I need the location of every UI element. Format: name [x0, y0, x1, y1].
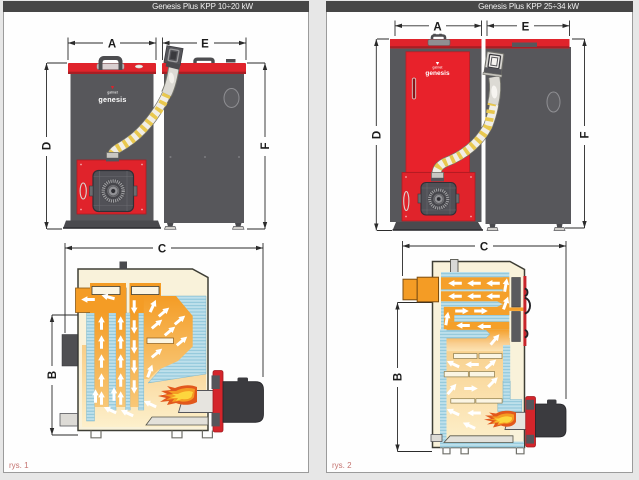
svg-text:D: D: [42, 142, 54, 150]
svg-text:A: A: [433, 21, 441, 33]
svg-text:genesis: genesis: [98, 95, 126, 104]
svg-text:galmet: galmet: [107, 91, 118, 95]
svg-text:C: C: [480, 242, 488, 254]
svg-text:C: C: [158, 244, 166, 256]
svg-text:F: F: [260, 142, 272, 149]
svg-text:E: E: [201, 39, 209, 51]
svg-text:D: D: [371, 131, 383, 139]
svg-text:B: B: [393, 373, 405, 381]
svg-text:genesis: genesis: [425, 70, 450, 77]
svg-text:galmet: galmet: [433, 66, 443, 70]
svg-text:A: A: [108, 39, 116, 51]
svg-text:B: B: [47, 371, 59, 379]
svg-text:E: E: [522, 21, 530, 33]
svg-text:F: F: [580, 131, 592, 138]
